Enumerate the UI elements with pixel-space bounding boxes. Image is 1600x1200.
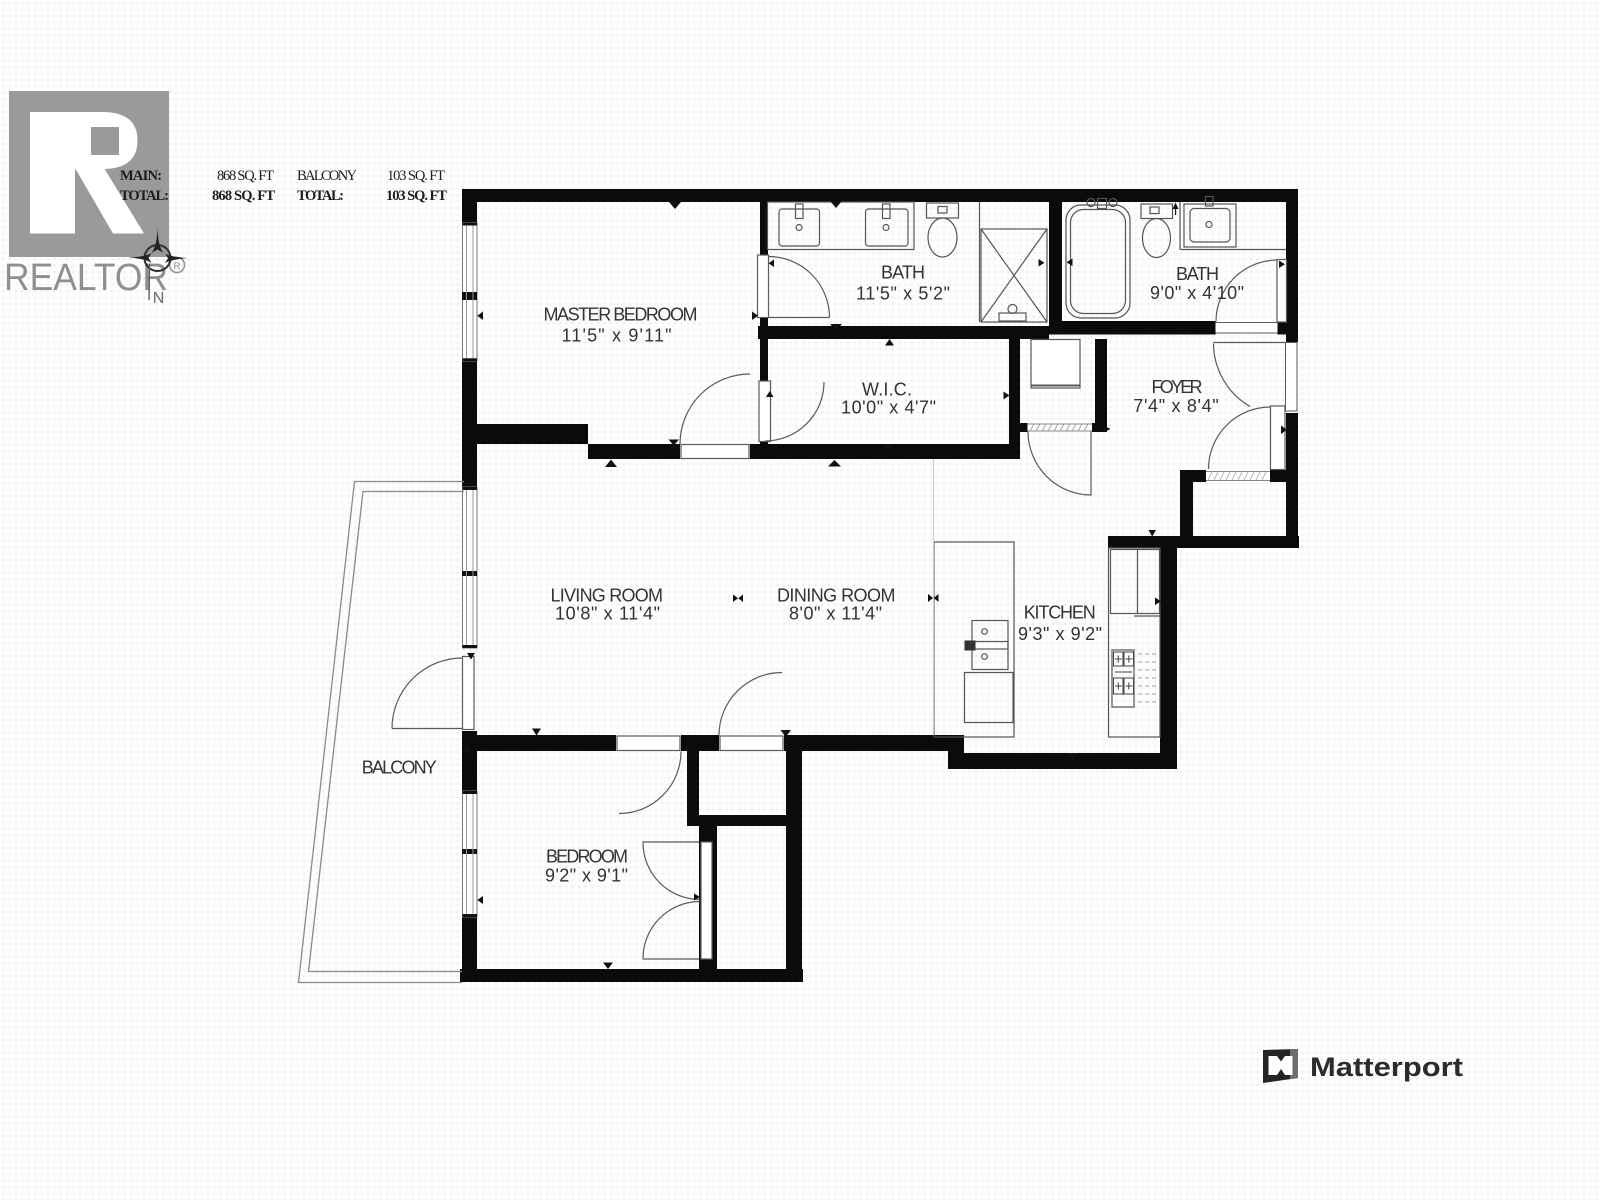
svg-text:Matterport: Matterport: [1310, 1052, 1463, 1082]
svg-text:KITCHEN: KITCHEN: [1024, 603, 1096, 623]
svg-text:R: R: [173, 262, 180, 273]
svg-text:BALCONY: BALCONY: [297, 168, 358, 184]
svg-text:N: N: [153, 290, 165, 307]
svg-text:868 SQ. FT: 868 SQ. FT: [212, 188, 275, 204]
svg-text:8'0" x 11'4": 8'0" x 11'4": [789, 604, 882, 624]
svg-text:MAIN:: MAIN:: [120, 168, 162, 184]
svg-text:TOTAL:: TOTAL:: [120, 188, 169, 204]
svg-text:W.I.C.: W.I.C.: [862, 380, 912, 400]
svg-text:10'8" x 11'4": 10'8" x 11'4": [555, 604, 660, 624]
svg-text:BEDROOM: BEDROOM: [546, 847, 628, 867]
svg-text:9'0" x 4'10": 9'0" x 4'10": [1150, 283, 1244, 303]
svg-text:103 SQ. FT: 103 SQ. FT: [386, 188, 447, 204]
svg-text:LIVING ROOM: LIVING ROOM: [551, 586, 664, 606]
svg-text:868 SQ. FT: 868 SQ. FT: [217, 168, 274, 184]
svg-text:MASTER BEDROOM: MASTER BEDROOM: [544, 305, 698, 325]
svg-text:11'5" x 9'11": 11'5" x 9'11": [562, 326, 672, 346]
svg-text:FOYER: FOYER: [1152, 377, 1203, 397]
svg-text:TOTAL:: TOTAL:: [297, 188, 344, 204]
svg-text:103 SQ. FT: 103 SQ. FT: [387, 168, 445, 184]
svg-text:10'0" x 4'7": 10'0" x 4'7": [841, 398, 936, 418]
svg-text:7'4" x 8'4": 7'4" x 8'4": [1133, 396, 1219, 416]
svg-text:9'3" x 9'2": 9'3" x 9'2": [1018, 624, 1102, 644]
svg-text:11'5" x 5'2": 11'5" x 5'2": [856, 284, 950, 304]
svg-text:9'2" x 9'1": 9'2" x 9'1": [545, 866, 628, 886]
svg-text:BALCONY: BALCONY: [362, 758, 437, 778]
svg-text:BATH: BATH: [1176, 264, 1219, 284]
svg-text:REALTOR: REALTOR: [4, 257, 168, 299]
svg-text:BATH: BATH: [881, 263, 925, 283]
svg-text:DINING ROOM: DINING ROOM: [777, 586, 896, 606]
